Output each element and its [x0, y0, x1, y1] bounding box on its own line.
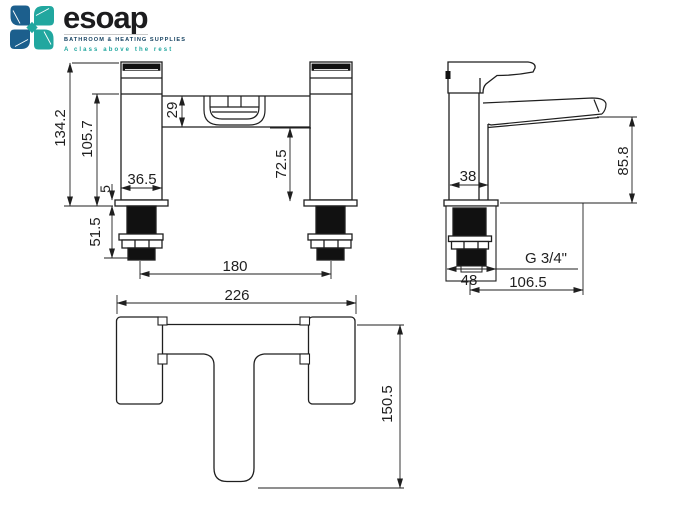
side-handle-lever — [446, 62, 536, 93]
side-tail — [446, 206, 496, 281]
dim-under-bar-height: 72.5 — [273, 149, 290, 178]
dim-base-thickness: 5 — [97, 185, 113, 193]
dim-body-height: 105.7 — [79, 120, 96, 158]
plan-view — [117, 317, 356, 482]
plan-bar — [160, 325, 308, 355]
dim-body-width: 36.5 — [127, 171, 156, 188]
dim-overall-depth: 150.5 — [379, 385, 396, 423]
plan-left-handle-block — [117, 317, 163, 404]
front-right-tail — [308, 206, 352, 260]
dim-tap-centres: 180 — [222, 258, 247, 275]
dim-tail-width: 48 — [461, 272, 478, 289]
dim-overall-height: 134.2 — [52, 109, 69, 147]
front-right-base-plate — [304, 200, 357, 206]
dim-body-depth: 38 — [460, 168, 477, 185]
dim-thread-length: 51.5 — [87, 217, 104, 246]
bath-filler-dimension-drawing: 134.2 105.7 5 51.5 36.5 29 72.5 180 226 — [0, 0, 673, 505]
side-base-plate — [444, 200, 498, 206]
side-spout — [483, 98, 606, 128]
dim-thread-spec: G 3/4" — [525, 250, 567, 267]
plan-spout-stem — [204, 354, 264, 482]
dim-spout-reach: 106.5 — [509, 274, 547, 291]
front-left-base-plate — [115, 200, 168, 206]
dim-spout-height: 85.8 — [615, 146, 632, 175]
front-view — [115, 62, 357, 260]
dim-overall-width: 226 — [224, 287, 249, 304]
front-spout-nose — [204, 96, 265, 125]
technical-drawing-page: esoap BATHROOM & HEATING SUPPLIES A clas… — [0, 0, 673, 505]
front-left-tail — [119, 206, 163, 260]
front-right-pillar — [310, 62, 352, 200]
dim-bar-height: 29 — [164, 102, 181, 119]
plan-right-handle-block — [309, 317, 356, 404]
